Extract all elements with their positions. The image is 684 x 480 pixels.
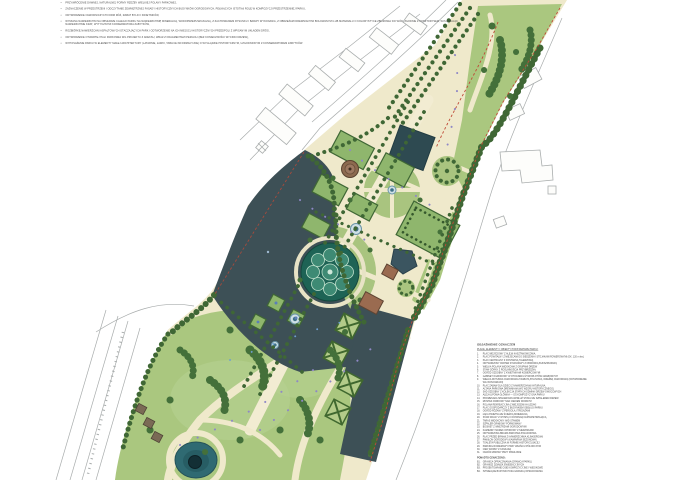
guideline-item: ODTWORZENIE OGRODNICZYCH FORM RÓŻ, RABAT… xyxy=(60,13,460,16)
gazebo xyxy=(342,161,359,178)
guideline-item: WYMIANA NAWIERZCHNI NA OBSZARZE CAŁEGO P… xyxy=(60,20,460,26)
tree-rondel xyxy=(432,156,462,186)
guideline-list: PRZYWRÓCENIE DAWNEJ, NATURALNEJ FORMY RZ… xyxy=(60,1,460,45)
legend-item: 31.OGRÓD ZIMOWY PRZY PAWILONIE xyxy=(477,451,589,454)
legend-items: 1.PLAC WEJŚCIOWY Z ALEJĄ KASZTANOWCOWĄ 2… xyxy=(477,352,589,454)
legend: OBJAŚNIENIE OZNACZEŃ PLACE, ELEMENTY I O… xyxy=(477,343,597,480)
legend-extra-title: PONADTO OZNACZONO: xyxy=(477,457,589,459)
tree-rondel xyxy=(397,279,415,297)
legend-item: B4.ISTNIEJĄCE BUDYNKI POZA GRANICĄ OPRAC… xyxy=(477,470,589,473)
legend-extra-items: B1.GRANICA OPRACOWANIA (GRANICA PARKU) B… xyxy=(477,460,589,473)
guideline-item: ODTWORZENIE OTWARTEJ HALI PARKOWEJ WG PR… xyxy=(60,35,460,38)
legend-title: OBJAŚNIENIE OZNACZEŃ xyxy=(477,343,589,346)
guideline-item: ZAZNACZENIE W PRZESTRZENI I ODCZYTANIE Z… xyxy=(60,7,460,10)
guideline-item: PRZYWRÓCENIE DAWNEJ, NATURALNEJ FORMY RZ… xyxy=(60,1,460,4)
guideline-item: WYPOSAŻENIE PARKU W ELEMENTY MAŁEJ ARCHI… xyxy=(60,42,460,45)
pond-round xyxy=(175,442,217,478)
legend-subtitle: PLACE, ELEMENTY I OBIEKTY PODSTAWOWE PAR… xyxy=(477,348,589,350)
fountain-basin xyxy=(388,186,396,194)
masterplan-canvas: PRZYWRÓCENIE DAWNEJ, NATURALNEJ FORMY RZ… xyxy=(0,0,684,480)
design-guidelines-notes: PRZYWRÓCENIE DAWNEJ, NATURALNEJ FORMY RZ… xyxy=(60,1,460,65)
guideline-item: ROZBIÓRKĘ NAWIERZCHNI ASFALTOWYCH OTACZA… xyxy=(60,29,460,32)
